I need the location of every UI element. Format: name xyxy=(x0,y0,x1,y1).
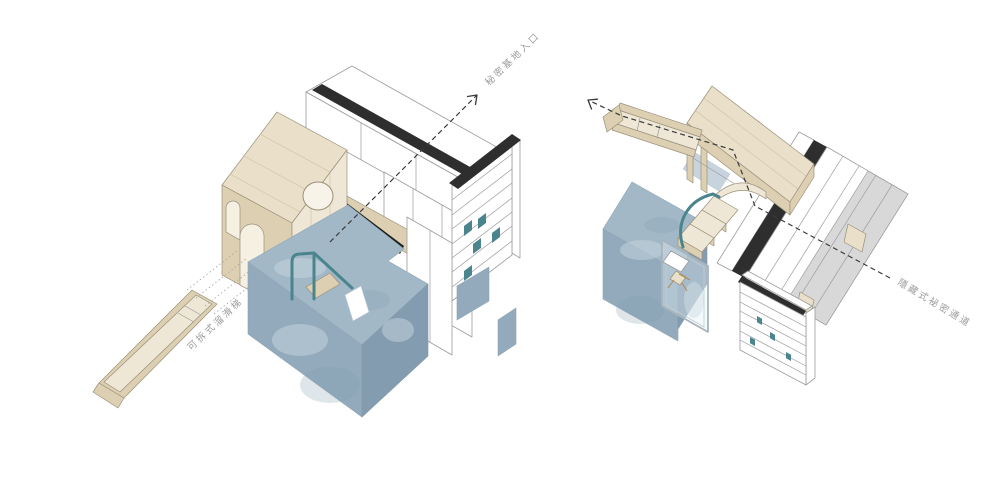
label-secret-base-entrance: 秘密基地入口 xyxy=(483,29,543,88)
label-hidden-passage: 隱藏式祕密通道 xyxy=(895,276,973,330)
axonometric-diagram: 秘密基地入口 可拆式溜滑梯 xyxy=(0,0,1000,490)
axonometric-diagram-page: 秘密基地入口 可拆式溜滑梯 xyxy=(0,0,1000,490)
slide xyxy=(603,103,702,157)
porthole-window xyxy=(303,182,333,210)
canopy-post xyxy=(701,147,707,193)
slide xyxy=(93,290,217,408)
loft-canopy xyxy=(683,86,814,215)
floor-patch xyxy=(498,308,516,356)
left-axon-view: 秘密基地入口 可拆式溜滑梯 xyxy=(93,29,543,417)
right-axon-view: 隱藏式祕密通道 xyxy=(588,86,974,385)
